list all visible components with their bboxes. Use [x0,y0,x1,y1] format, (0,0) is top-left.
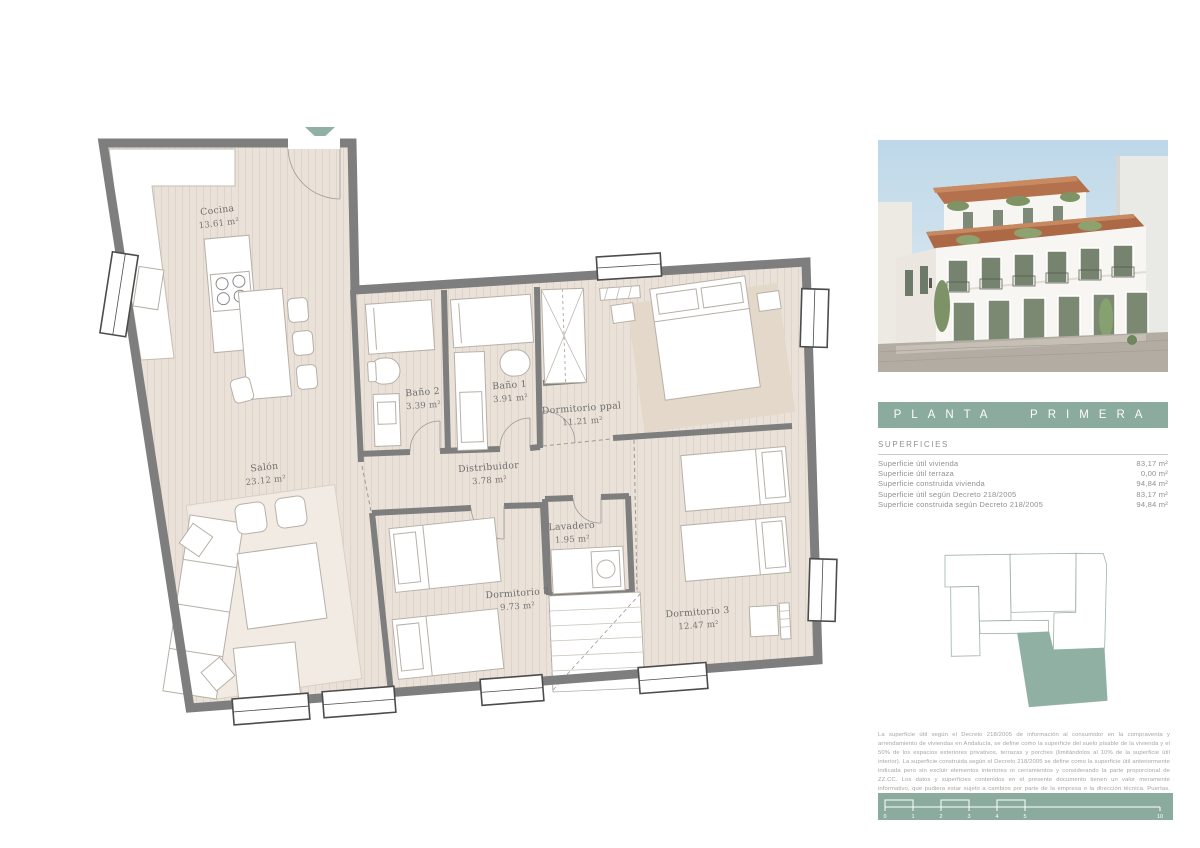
scale-bar: 0 1 2 3 4 5 10 [878,793,1173,820]
bed-3b [681,516,790,581]
pouf [234,501,268,535]
scale-label: 0 [883,814,886,820]
table-row: Superficie construida según Decreto 218/… [878,500,1168,510]
potted-plant [1127,335,1137,345]
bed-2b [392,609,504,680]
bed-2a [389,518,501,593]
surface-label: Superficie construida vivienda [878,479,985,489]
vanity-bath1 [454,352,487,451]
entrance-opening [288,136,340,149]
page-title: PLANTA PRIMERA [894,409,1153,421]
table-row: Superficie útil terraza 0,00 m² [878,469,1168,479]
bed-3a [681,446,790,511]
scale-label: 4 [995,814,998,820]
table-row: Superficie construida vivienda 94,84 m² [878,479,1168,489]
plan-title-banner: PLANTA PRIMERA [878,402,1168,428]
scale-label: 3 [967,814,970,820]
nightstand [757,291,781,312]
surface-label: Superficie útil según Decreto 218/2005 [878,490,1016,500]
surface-label: Superficie construida según Decreto 218/… [878,500,1043,510]
chaise [233,642,300,702]
surface-value: 94,84 m² [1136,500,1168,510]
plan-sheet-page: { "plan": { "rooms": [ {"name": "Cocina"… [0,0,1200,848]
scale-ruler [885,800,1160,811]
surface-value: 94,84 m² [1136,479,1168,489]
svg-text:1.95 m²: 1.95 m² [555,534,590,546]
surfaces-heading: SUPERFICIES [878,440,1168,455]
radiator [600,286,641,301]
pouf [274,495,308,529]
wardrobe [541,288,586,383]
floor-plan: Cocina 13.61 m² Baño 2 3.39 m² Baño 1 3.… [85,100,845,750]
table-row: Superficie útil según Decreto 218/2005 8… [878,490,1168,500]
surface-value: 83,17 m² [1136,490,1168,500]
street-lamp [929,278,932,288]
surfaces-table: Superficie útil vivienda 83,17 m² Superf… [878,459,1168,510]
surface-value: 83,17 m² [1136,459,1168,469]
scale-label: 2 [939,814,942,820]
climbing-plant [1099,298,1113,338]
kitchen-sink [133,266,164,309]
surface-label: Superficie útil vivienda [878,459,958,469]
scale-label: 1 [911,814,914,820]
surface-label: Superficie útil terraza [878,469,954,479]
shower-bath2 [365,300,434,354]
nightstand [611,303,635,324]
shower-bath1 [450,294,533,347]
toilet-bath1 [499,349,530,377]
table-row: Superficie útil vivienda 83,17 m² [878,459,1168,469]
dresser [749,603,791,641]
key-plan-unit-highlight [1017,632,1107,707]
sink-bath2 [373,394,401,447]
scale-label: 10 [1157,814,1163,820]
washer [551,546,625,594]
surface-value: 0,00 m² [1141,469,1168,479]
toilet-bath2 [367,357,400,385]
scale-label: 5 [1023,814,1026,820]
building-render [878,140,1168,372]
coffee-table [237,543,327,629]
key-plan-diagram [930,533,1160,723]
master-bed [650,276,761,400]
climbing-plant [934,280,950,332]
